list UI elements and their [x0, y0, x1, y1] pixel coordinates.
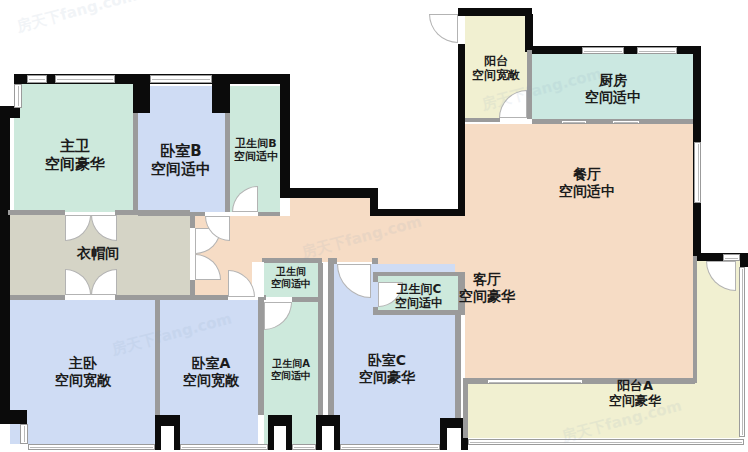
window: [55, 75, 115, 83]
wall: [0, 410, 27, 424]
partition: [373, 310, 463, 315]
partition: [155, 300, 160, 415]
room-label-living: 客厅空间豪华: [437, 271, 537, 304]
partition: [258, 212, 280, 216]
window: [28, 444, 155, 450]
watermark: 房天下fang.com: [15, 0, 139, 37]
wall: [280, 74, 290, 194]
wall: [740, 253, 748, 267]
pillar-notch: [161, 426, 174, 450]
pillar-notch: [274, 426, 286, 450]
room-label-bath-b: 卫生间B空间适中: [228, 138, 284, 164]
wall: [458, 8, 465, 14]
partition: [10, 295, 65, 300]
window: [582, 47, 624, 54]
room-label-bath-a: 卫生间A空间适中: [262, 358, 320, 382]
window: [723, 254, 740, 261]
window: [27, 75, 47, 83]
window: [20, 424, 28, 444]
room-label-master-bedroom: 主卧空间宽敞: [33, 355, 133, 388]
floor-plan: 主卫空间豪华 卧室B空间适中 卫生间B空间适中 阳台空间宽敞 厨房空间适中 餐厅…: [0, 0, 748, 452]
room-label-bedroom-b: 卧室B空间适中: [136, 143, 226, 178]
pillar-notch: [447, 428, 461, 450]
partition: [328, 258, 334, 415]
window: [637, 47, 677, 54]
window: [340, 444, 440, 450]
partition: [190, 280, 195, 295]
room-label-master-bath: 主卫空间豪华: [20, 138, 130, 173]
window: [694, 142, 701, 203]
partition: [8, 210, 65, 215]
wall: [280, 188, 378, 198]
window: [150, 75, 212, 83]
wall: [458, 8, 532, 16]
room-label-dining: 餐厅空间适中: [537, 166, 637, 199]
partition: [463, 383, 468, 438]
room-label-cloakroom: 衣帽间: [48, 245, 148, 262]
window: [468, 439, 744, 445]
window: [180, 444, 268, 450]
partition: [465, 118, 500, 122]
partition: [372, 258, 378, 264]
window: [739, 267, 745, 437]
partition: [328, 258, 337, 264]
room-label-bath: 卫生间空间适中: [262, 266, 320, 290]
partition: [455, 315, 461, 418]
window: [487, 379, 583, 384]
room-label-bedroom-a: 卧室A空间宽敞: [161, 355, 261, 388]
hallway: [290, 198, 370, 216]
room-label-balcony: 阳台空间宽敞: [462, 54, 530, 82]
wall: [0, 106, 10, 416]
window: [612, 120, 640, 124]
wall-pillar: [133, 74, 150, 113]
window: [14, 84, 22, 108]
room-dining-living: [465, 124, 693, 378]
window: [561, 120, 587, 124]
wall-pillar: [212, 74, 230, 113]
partition: [190, 215, 195, 228]
partition: [693, 256, 697, 383]
room-label-bedroom-c: 卧室C空间豪华: [337, 352, 437, 385]
partition: [115, 295, 228, 300]
window: [292, 444, 316, 450]
door-arc: [429, 14, 458, 43]
pillar-notch: [322, 426, 334, 450]
